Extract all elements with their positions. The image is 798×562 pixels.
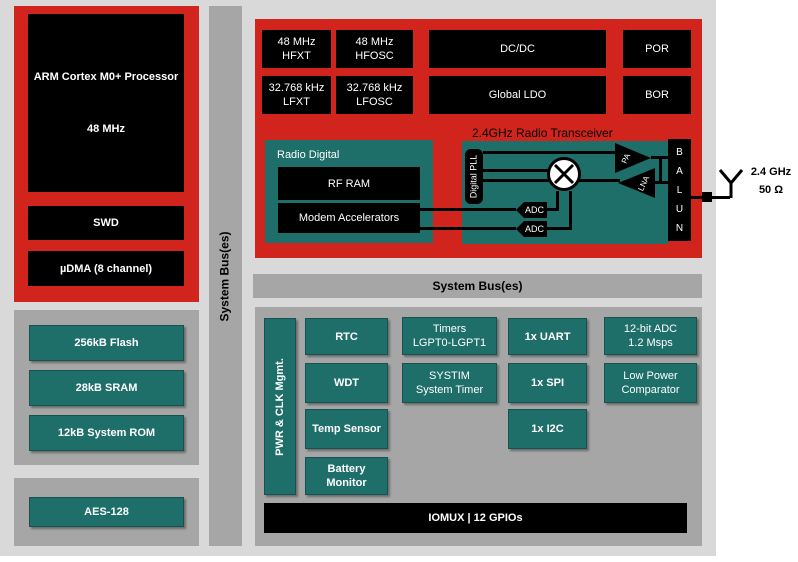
hfosc-block: 48 MHz HFOSC — [336, 30, 413, 68]
antenna-feed-node — [702, 192, 712, 202]
systim-block: SYSTIM System Timer — [402, 363, 497, 403]
wire-pll-to-mixer — [483, 169, 548, 172]
antenna-icon — [716, 167, 746, 199]
security-section: AES-128 — [14, 478, 199, 546]
bor-block: BOR — [623, 76, 691, 114]
antenna-freq: 2.4 GHz — [744, 163, 798, 181]
i2c-block: 1x I2C — [508, 409, 587, 449]
balun-block: B A L U N — [668, 139, 691, 241]
dcdc-block: DC/DC — [429, 30, 606, 68]
temp-sensor-block: Temp Sensor — [305, 409, 388, 449]
wire-adc2-out-v — [569, 191, 572, 230]
uart-block: 1x UART — [508, 318, 587, 355]
adc-top-label: ADC — [525, 205, 544, 216]
rom-block: 12kB System ROM — [29, 415, 184, 451]
system-bus-vertical-label: System Bus(es) — [218, 231, 233, 321]
system-bus-horizontal-label: System Bus(es) — [432, 279, 522, 294]
comparator-block: Low Power Comparator — [604, 363, 697, 403]
adc12bit-block: 12-bit ADC 1.2 Msps — [604, 317, 697, 355]
lna-label: LNA — [636, 174, 651, 192]
digital-pll-label: Digital PLL — [469, 155, 480, 199]
processor-title: ARM Cortex M0+ Processor — [34, 70, 179, 84]
lfxt-block: 32.768 kHz LFXT — [262, 76, 331, 114]
wire-pa-lna-bridge — [659, 156, 662, 184]
peripherals-section: PWR & CLK Mgmt. RTC WDT Temp Sensor Batt… — [255, 307, 702, 546]
soc-block-diagram: ARM Cortex M0+ Processor 48 MHz SWD µDMA… — [0, 0, 716, 556]
iomux-block: IOMUX | 12 GPIOs — [264, 503, 687, 533]
memory-section: 256kB Flash 28kB SRAM 12kB System ROM — [14, 310, 199, 465]
arm-processor-block: ARM Cortex M0+ Processor 48 MHz — [28, 14, 184, 192]
battery-monitor-block: Battery Monitor — [305, 457, 388, 495]
wire-modem-to-adc1 — [420, 208, 516, 211]
processor-speed: 48 MHz — [87, 122, 125, 136]
transceiver-title: 2.4GHz Radio Transceiver — [472, 126, 613, 141]
system-bus-horizontal: System Bus(es) — [253, 274, 702, 298]
pwr-clk-block: PWR & CLK Mgmt. — [264, 318, 296, 495]
aes-block: AES-128 — [29, 497, 184, 527]
antenna-spec-label: 2.4 GHz 50 Ω — [744, 163, 798, 199]
pa-label: PA — [620, 152, 632, 165]
hfxt-block: 48 MHz HFXT — [262, 30, 331, 68]
pwr-clk-label: PWR & CLK Mgmt. — [273, 358, 287, 456]
flash-block: 256kB Flash — [29, 325, 184, 361]
radio-digital-box: Radio Digital RF RAM Modem Accelerators — [265, 140, 433, 243]
cpu-section: ARM Cortex M0+ Processor 48 MHz SWD µDMA… — [14, 6, 199, 302]
digital-pll-block: Digital PLL — [465, 149, 483, 204]
spi-block: 1x SPI — [508, 363, 587, 403]
wire-modem-to-adc2 — [420, 227, 516, 230]
wdt-block: WDT — [305, 363, 388, 403]
timers-block: Timers LGPT0-LGPT1 — [402, 317, 497, 355]
ldo-block: Global LDO — [429, 76, 606, 114]
wire-pll-to-pa — [483, 151, 616, 154]
sram-block: 28kB SRAM — [29, 370, 184, 406]
por-block: POR — [623, 30, 691, 68]
udma-block: µDMA (8 channel) — [28, 251, 184, 286]
antenna-impedance: 50 Ω — [744, 181, 798, 199]
radio-digital-title: Radio Digital — [277, 148, 339, 162]
lfosc-block: 32.768 kHz LFOSC — [336, 76, 413, 114]
clocks-power-radio-section: 48 MHz HFXT 48 MHz HFOSC DC/DC POR 32.76… — [255, 19, 702, 258]
rf-ram-block: RF RAM — [278, 167, 420, 200]
system-bus-vertical: System Bus(es) — [209, 6, 242, 546]
swd-block: SWD — [28, 206, 184, 240]
adc-bottom-label: ADC — [525, 224, 544, 235]
wire-adc1-out-v — [556, 191, 559, 211]
rtc-block: RTC — [305, 318, 388, 355]
mixer-icon — [547, 157, 581, 191]
modem-accelerators-block: Modem Accelerators — [278, 203, 420, 233]
